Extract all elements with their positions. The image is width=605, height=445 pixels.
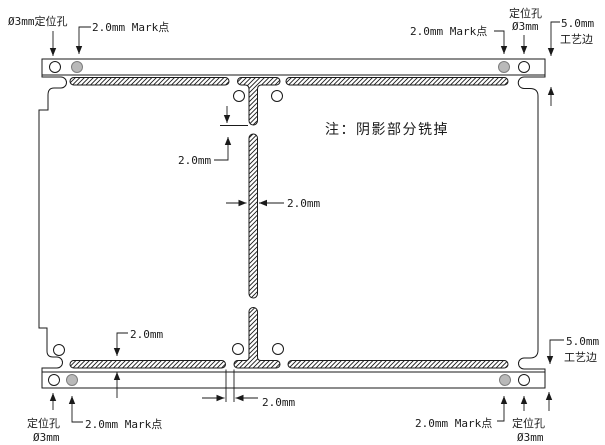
panel-right-edge [518,75,545,372]
label-bl-hole-name: 定位孔 [27,416,60,430]
label-tab-width: 2.0mm [262,396,295,409]
positioning-hole-bottom-right [519,375,530,386]
callout-bottom-right-mark: 2.0mm Mark点 [415,396,504,430]
board-hole-right-top-inner [272,91,283,102]
leader-arrow-tr-edge [551,22,560,56]
label-br-mark-point: 2.0mm Mark点 [415,417,492,430]
milling-note: 注：阴影部分铣掉 [325,122,449,138]
label-tl-mark-point: 2.0mm Mark点 [92,21,169,34]
leader-arrow-br-edge [550,340,564,364]
board-hole-right-bottom-inner [273,344,284,355]
label-br-hole-size: Ø3mm [517,431,544,444]
label-bar-width: 2.0mm [287,197,320,210]
label-tr-edge-name: 工艺边 [560,33,593,46]
mark-point-top-left [72,62,83,73]
callout-bottom-left-hole: 定位孔 Ø3mm [27,393,60,444]
callout-top-left-hole: Ø3mm定位孔 [8,14,68,56]
dimension-center-gap: 2.0mm [178,106,248,167]
callout-top-right-mark: 2.0mm Mark点 [410,25,504,54]
leader-arrow-tl-mark [79,27,91,54]
dimension-bottom-right-edge: 5.0mm 工艺边 [549,335,599,411]
label-br-edge-name: 工艺边 [564,351,597,364]
callout-bottom-right-hole: 定位孔 Ø3mm [512,396,545,444]
mark-point-bottom-left [67,375,78,386]
label-bl-mark-point: 2.0mm Mark点 [85,418,162,431]
callout-top-right-hole: 定位孔 Ø3mm [509,6,542,54]
label-tr-hole-size: Ø3mm [512,20,539,33]
label-bl-hole-size: Ø3mm [33,431,60,444]
dimension-center-bar-width: 2.0mm [226,197,320,210]
callout-bottom-left-mark: 2.0mm Mark点 [72,396,162,431]
positioning-hole-bottom-left [49,375,60,386]
panel-left-edge [39,75,67,372]
label-center-gap: 2.0mm [178,154,211,167]
dimension-top-right-edge: 5.0mm 工艺边 [551,17,594,106]
board-hole-left-bottom-outer [54,345,65,356]
leader-arrow-br-mark [497,396,504,421]
mark-point-bottom-right [500,375,511,386]
leader-arrow-tr-mark [494,31,504,54]
milled-slot-bottom-right [288,361,508,369]
positioning-hole-top-left [50,62,61,73]
label-slot-width: 2.0mm [130,328,163,341]
label-tl-positioning-hole: Ø3mm定位孔 [8,14,68,28]
board-hole-left-top-inner [234,91,245,102]
board-hole-left-bottom-inner [233,344,244,355]
positioning-hole-top-right [519,62,530,73]
label-br-hole-name: 定位孔 [512,416,545,430]
drawing-svg: Ø3mm定位孔 2.0mm Mark点 2.0mm Mark点 定位孔 Ø3mm… [0,0,605,445]
top-rail [42,59,545,75]
milled-slot-bottom-tee [234,308,280,369]
label-br-edge-size: 5.0mm [566,335,599,348]
callout-top-left-mark: 2.0mm Mark点 [79,21,169,54]
milled-slot-top-left [70,78,229,86]
label-tr-edge-size: 5.0mm [561,17,594,30]
arrow-slot-down [117,333,128,356]
pcb-panel-drawing: Ø3mm定位孔 2.0mm Mark点 2.0mm Mark点 定位孔 Ø3mm… [0,0,605,445]
label-tr-hole-name: 定位孔 [509,6,542,20]
mark-point-top-right [499,62,510,73]
milled-slot-top-tee [238,78,281,126]
arrow-gap-up [214,137,228,160]
label-tr-mark-point: 2.0mm Mark点 [410,25,487,38]
milled-slot-bottom-left [70,361,226,369]
milled-slot-center-bar [249,134,258,298]
milled-slot-top-right [286,78,508,86]
leader-arrow-bl-mark [72,396,83,422]
